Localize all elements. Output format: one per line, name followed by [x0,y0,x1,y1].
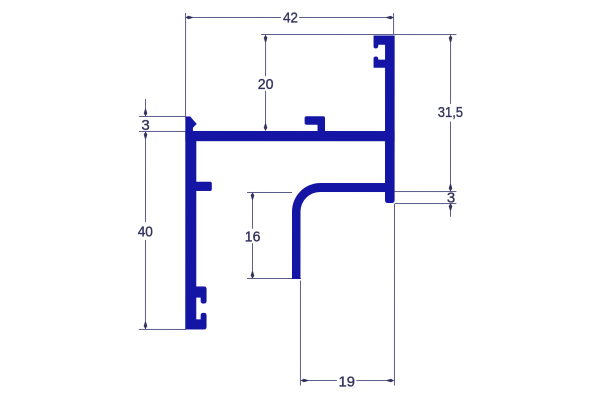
svg-text:19: 19 [338,373,355,390]
svg-text:31,5: 31,5 [438,104,463,121]
svg-text:42: 42 [283,9,298,26]
svg-text:20: 20 [258,76,274,93]
svg-text:3: 3 [447,190,455,207]
svg-text:3: 3 [141,117,149,134]
svg-text:40: 40 [138,224,153,241]
svg-text:16: 16 [245,228,261,245]
